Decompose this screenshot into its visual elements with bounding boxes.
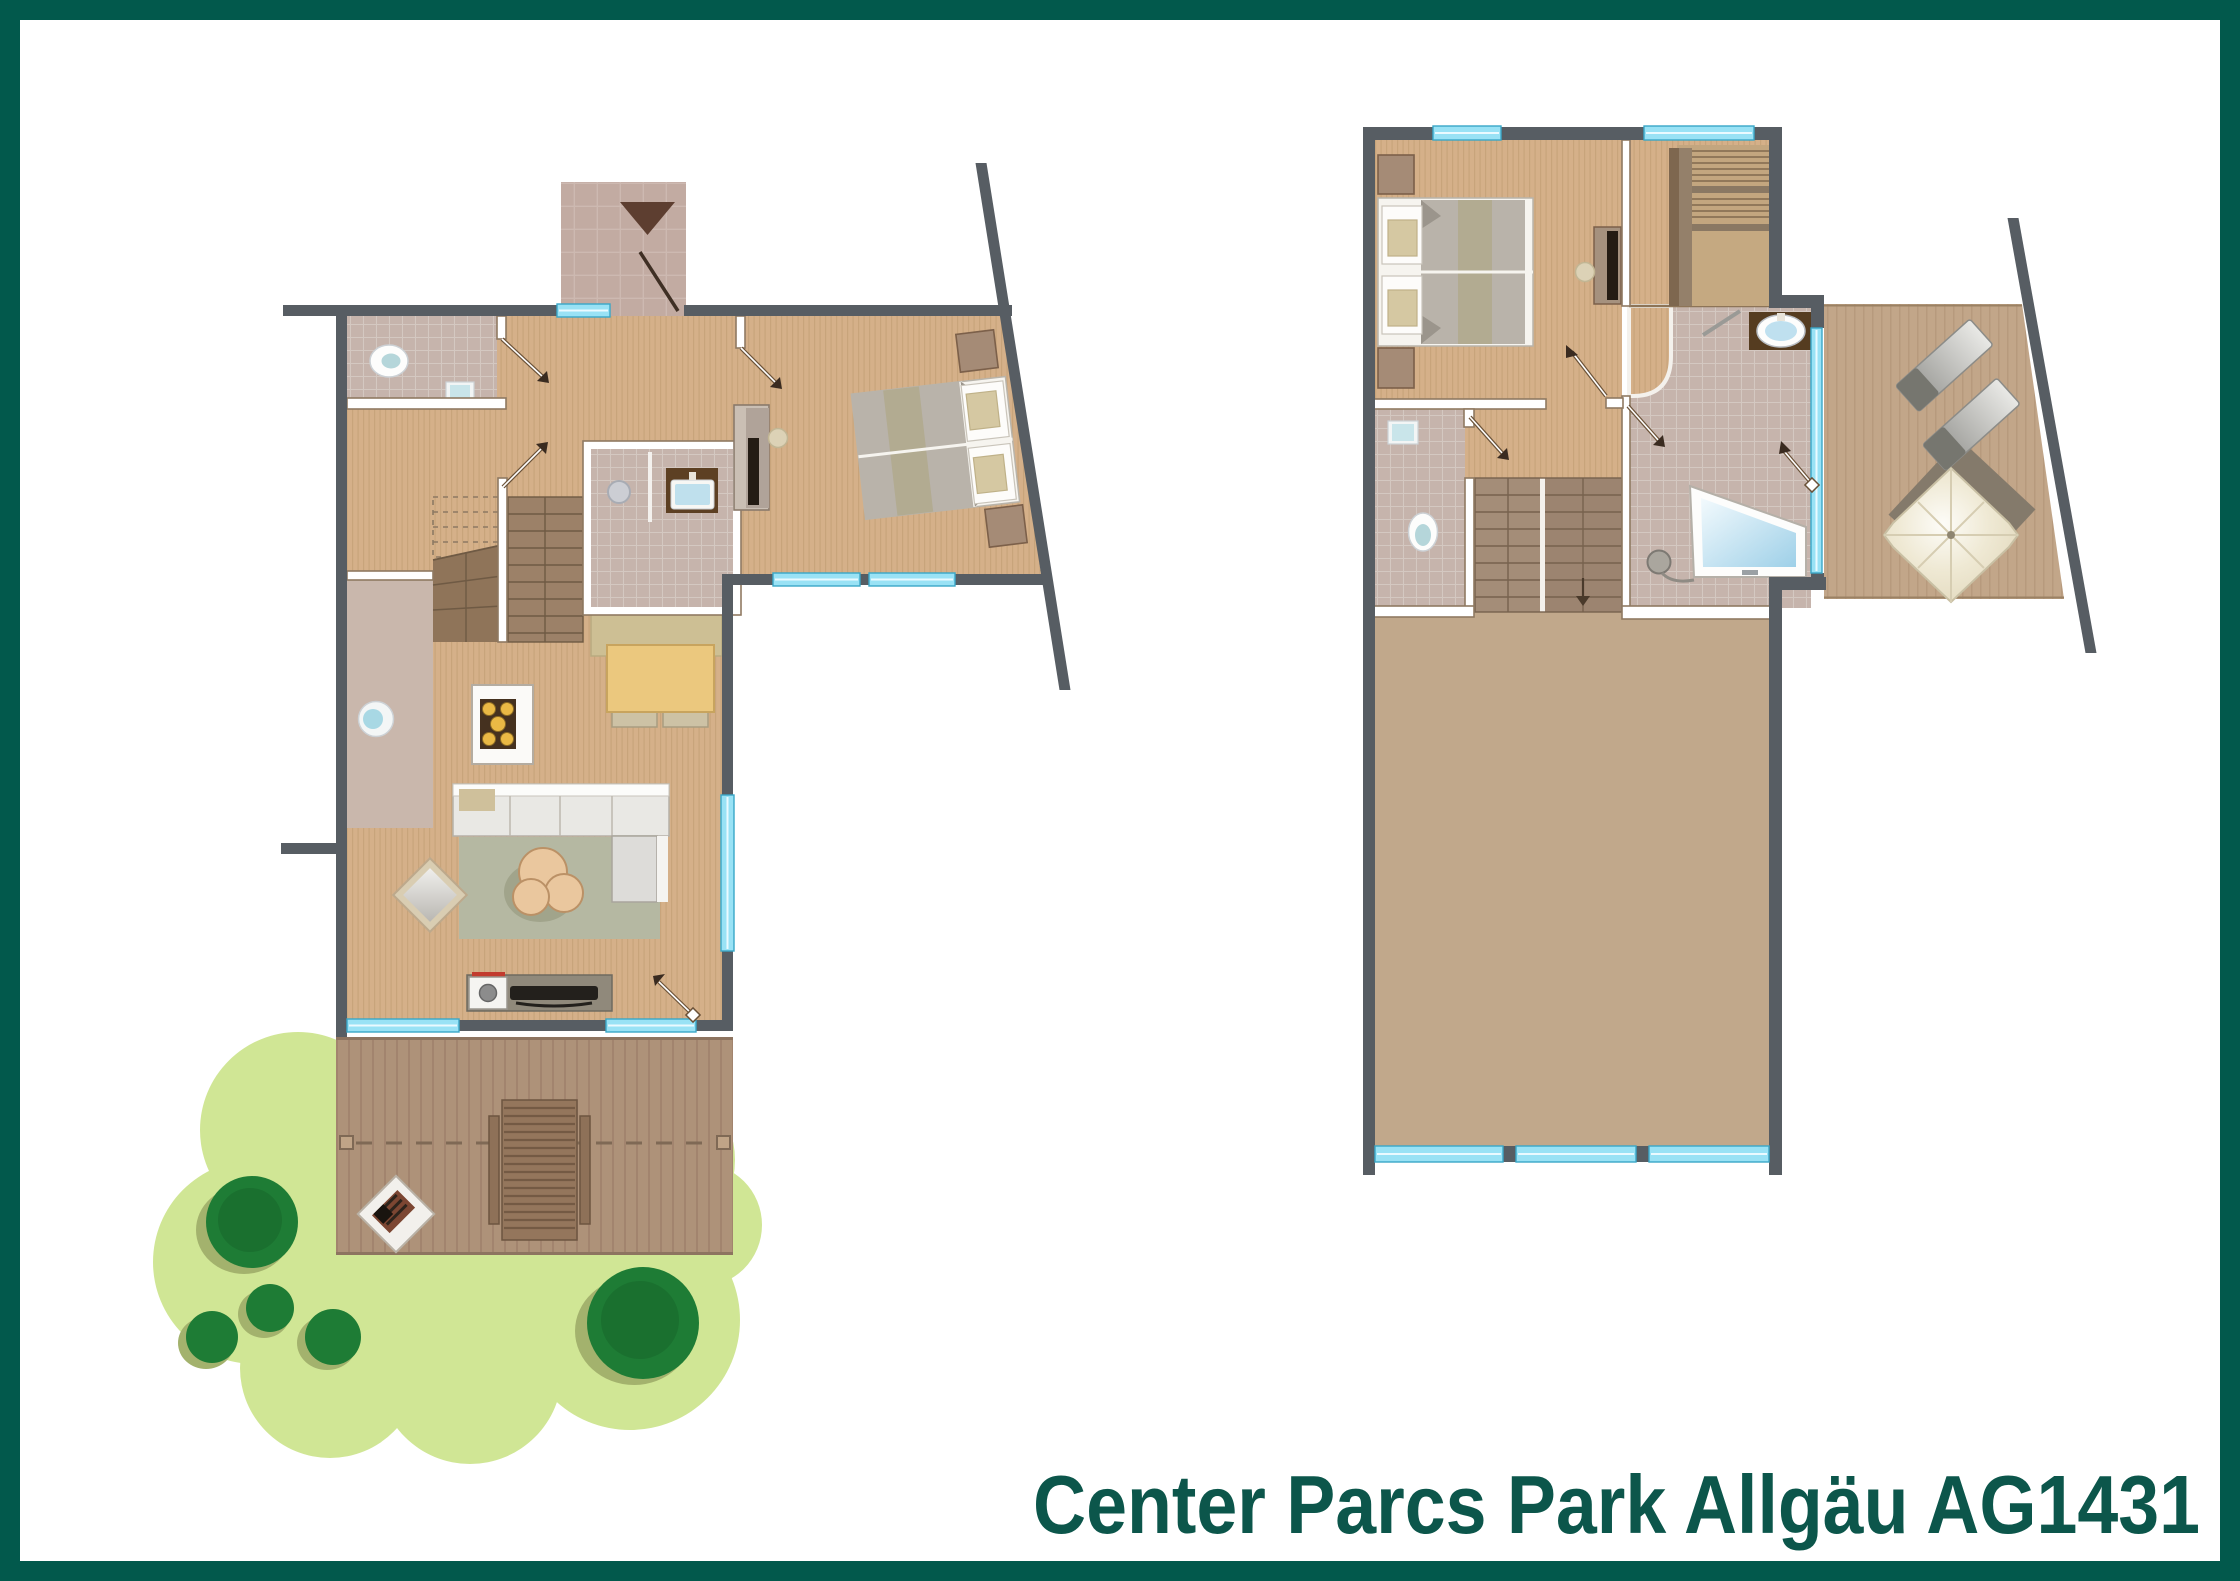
svg-text:Center Parcs Park Allgäu AG143: Center Parcs Park Allgäu AG1431	[1033, 1458, 2200, 1551]
